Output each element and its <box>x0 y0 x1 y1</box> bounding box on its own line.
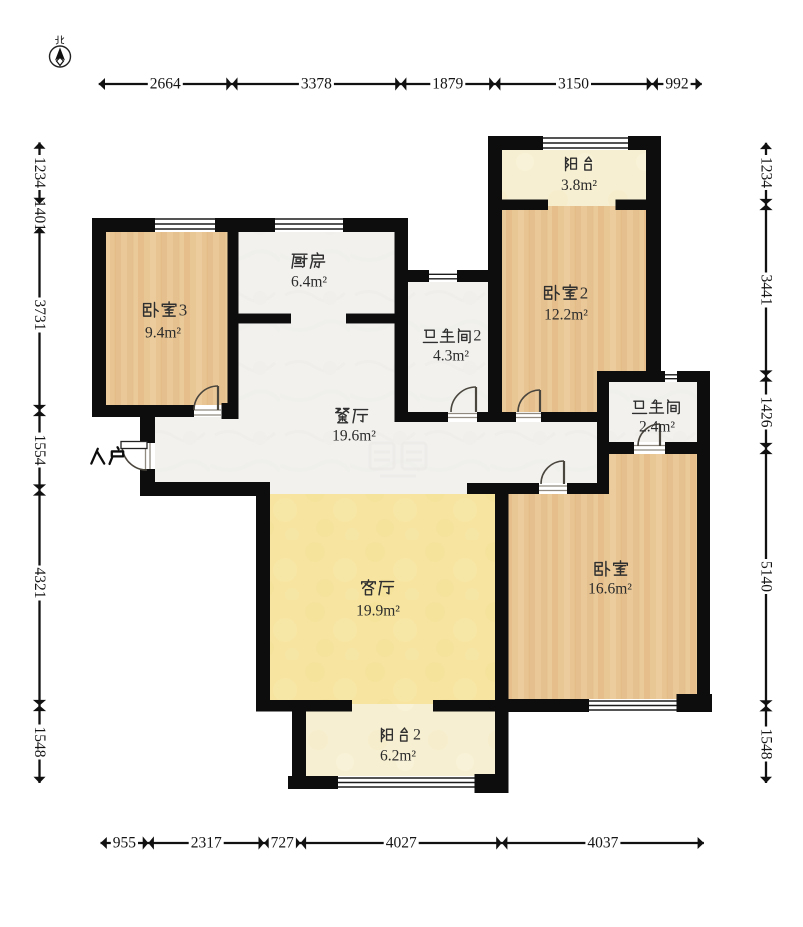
svg-text:3731: 3731 <box>31 300 48 331</box>
svg-text:16.6m²: 16.6m² <box>588 581 632 598</box>
svg-text:2: 2 <box>413 727 421 744</box>
svg-text:4027: 4027 <box>386 835 417 852</box>
svg-text:992: 992 <box>665 76 688 93</box>
svg-text:2664: 2664 <box>150 76 181 93</box>
svg-text:2.4m²: 2.4m² <box>639 419 675 436</box>
svg-text:1401: 1401 <box>31 200 48 231</box>
svg-text:1879: 1879 <box>432 76 463 93</box>
svg-text:19.6m²: 19.6m² <box>332 428 376 445</box>
svg-text:12.2m²: 12.2m² <box>544 307 588 324</box>
svg-text:1234: 1234 <box>31 157 48 188</box>
svg-text:727: 727 <box>271 835 295 852</box>
svg-text:2: 2 <box>580 284 589 303</box>
svg-text:19.9m²: 19.9m² <box>356 603 400 620</box>
svg-text:955: 955 <box>113 835 137 852</box>
svg-text:4.3m²: 4.3m² <box>433 348 469 365</box>
svg-text:3441: 3441 <box>758 275 775 306</box>
svg-text:3.8m²: 3.8m² <box>561 177 597 194</box>
svg-text:1426: 1426 <box>758 397 775 428</box>
svg-text:2317: 2317 <box>191 835 222 852</box>
svg-text:3150: 3150 <box>558 76 589 93</box>
svg-text:4037: 4037 <box>587 835 618 852</box>
svg-text:6.2m²: 6.2m² <box>380 748 416 765</box>
svg-text:2: 2 <box>473 328 481 345</box>
svg-text:1554: 1554 <box>31 435 48 466</box>
svg-text:6.4m²: 6.4m² <box>291 274 327 291</box>
svg-text:1548: 1548 <box>31 727 48 758</box>
svg-text:4321: 4321 <box>31 568 48 599</box>
svg-text:1234: 1234 <box>758 157 775 188</box>
svg-text:9.4m²: 9.4m² <box>145 325 181 342</box>
svg-text:1548: 1548 <box>758 729 775 760</box>
svg-text:3378: 3378 <box>301 76 332 93</box>
svg-text:3: 3 <box>179 301 188 320</box>
svg-text:5140: 5140 <box>758 561 775 592</box>
